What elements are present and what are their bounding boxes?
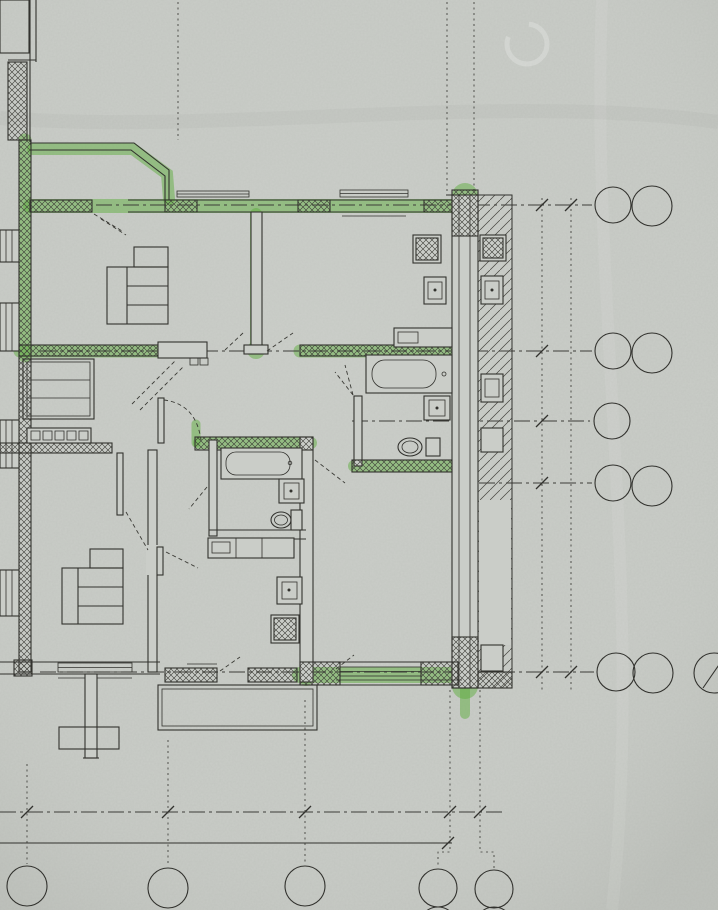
wall-end-cap [244, 345, 268, 354]
lower-left-wall [85, 674, 97, 758]
floor-plan-drawing [0, 0, 718, 910]
bathtub-icon [366, 355, 452, 393]
living-131-top-wall [0, 443, 112, 453]
bath-40-wall [354, 396, 362, 466]
kitchen-counter [208, 538, 294, 558]
door-leaf [157, 547, 163, 575]
stove-icon [274, 618, 296, 640]
wall-living-kitchen-272 [251, 212, 262, 345]
kitchen-counter [394, 328, 452, 347]
adjacent-section-strip [478, 195, 512, 688]
bath-40-bottom-wall [352, 460, 452, 472]
corridor-threshold [158, 342, 207, 358]
mid-wall-left [19, 345, 170, 356]
vent-shaft-icon [416, 238, 438, 260]
floor-plan-photo [0, 0, 718, 910]
bath-37-wall [209, 440, 217, 536]
door-leaf [158, 398, 164, 443]
door-leaf [117, 453, 123, 515]
kitchen-counter-131 [27, 428, 91, 443]
left-outer-wall [19, 140, 31, 672]
